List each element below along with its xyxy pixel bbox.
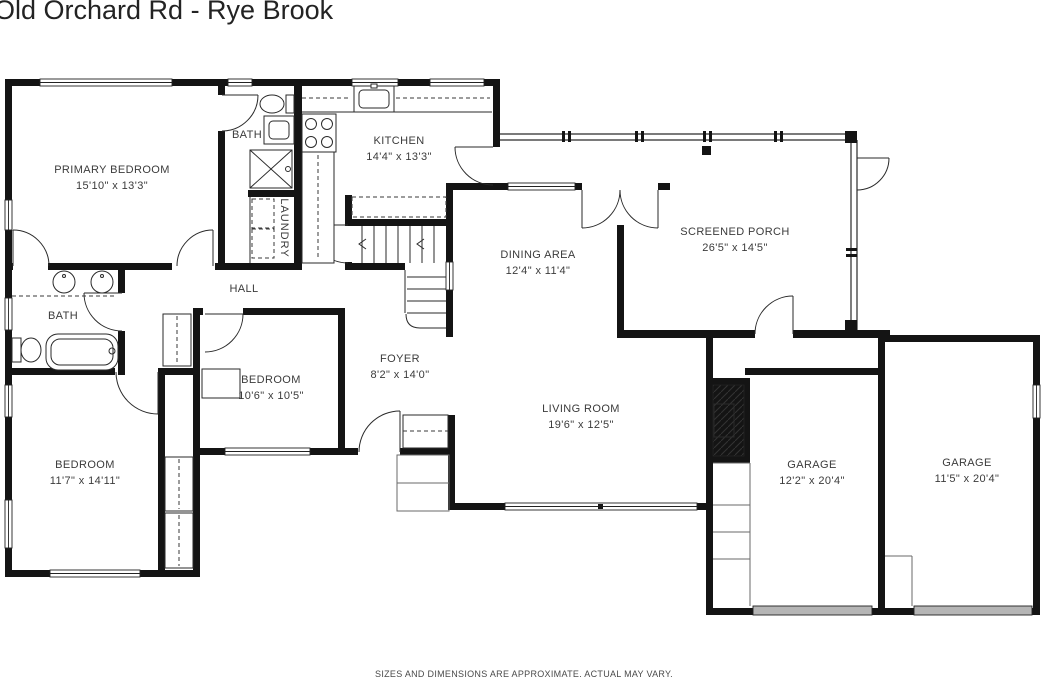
room-label-foyer: FOYER8'2" x 14'0" bbox=[370, 352, 429, 384]
room-label-kitchen: KITCHEN14'4" x 13'3" bbox=[366, 134, 432, 166]
room-label-living-room: LIVING ROOM19'6" x 12'5" bbox=[542, 402, 620, 434]
room-label-bath-hall: BATH bbox=[48, 309, 78, 325]
room-label-garage-right: GARAGE11'5" x 20'4" bbox=[935, 456, 1000, 488]
room-label-hall: HALL bbox=[229, 282, 258, 298]
floor-plan-page: Old Orchard Rd - Rye Brook PRIMARY BEDRO… bbox=[0, 0, 1048, 681]
kitchen-fixtures bbox=[302, 84, 492, 263]
toilet-icon bbox=[286, 95, 294, 113]
page-title: Old Orchard Rd - Rye Brook bbox=[0, 0, 333, 26]
floor-plan-drawing bbox=[0, 0, 1048, 681]
room-label-screened-porch: SCREENED PORCH26'5" x 14'5" bbox=[680, 225, 790, 257]
laundry-fixtures bbox=[250, 197, 274, 263]
room-label-laundry: LAUNDRY bbox=[275, 198, 291, 257]
walls bbox=[5, 79, 1040, 615]
dryer-icon bbox=[252, 229, 274, 258]
room-label-primary-bedroom: PRIMARY BEDROOM15'10" x 13'3" bbox=[54, 163, 170, 195]
garage-door-right bbox=[914, 606, 1032, 615]
toilet-icon bbox=[12, 338, 21, 362]
disclaimer-text: SIZES AND DIMENSIONS ARE APPROXIMATE. AC… bbox=[0, 669, 1048, 679]
washer-icon bbox=[252, 199, 274, 228]
room-label-bath-ensuite: BATH bbox=[232, 128, 262, 144]
room-label-bedroom-corner: BEDROOM11'7" x 14'11" bbox=[50, 458, 120, 490]
room-label-bedroom-middle: BEDROOM10'6" x 10'5" bbox=[238, 373, 304, 405]
front-stoop bbox=[397, 455, 449, 483]
fireplace-icon bbox=[706, 378, 750, 463]
room-label-garage-left: GARAGE12'2" x 20'4" bbox=[779, 458, 845, 490]
stairs bbox=[352, 197, 446, 328]
porch-screen-walls bbox=[500, 131, 857, 332]
garage-door-left bbox=[753, 606, 872, 615]
room-label-dining-area: DINING AREA12'4" x 11'4" bbox=[500, 248, 575, 280]
